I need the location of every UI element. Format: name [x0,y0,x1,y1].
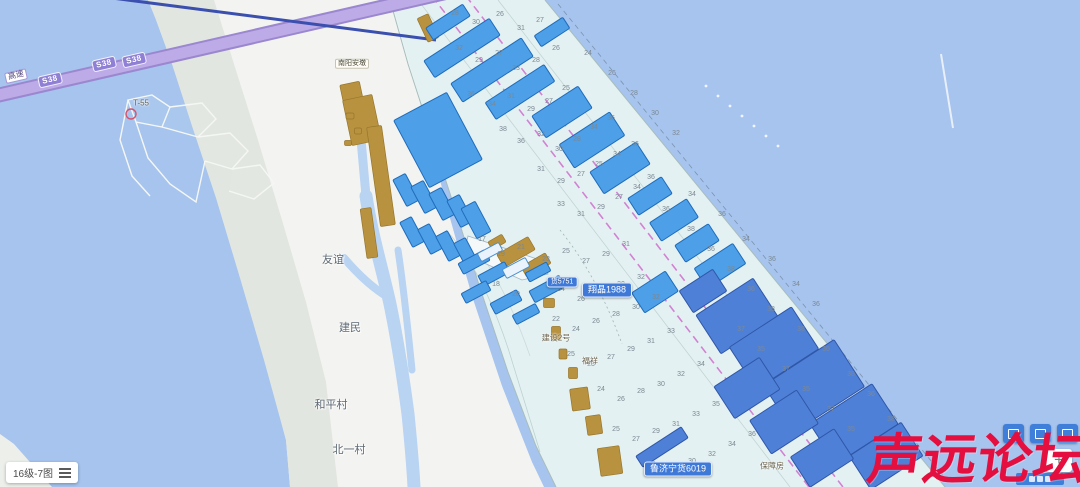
depth-sounding: 34 [688,191,696,198]
depth-sounding: 29 [652,428,660,435]
depth-sounding: 33 [557,201,565,208]
depth-sounding: 30 [632,304,640,311]
spoil-area [597,446,623,477]
map-app: 2830263127322927332826363431292725383632… [0,0,1080,487]
depth-sounding: 20 [512,291,520,298]
depth-sounding: 26 [608,70,616,77]
depth-sounding: 36 [517,138,525,145]
depth-sounding: 35 [712,401,720,408]
menu-icon[interactable] [59,468,71,470]
depth-sounding: 34 [728,441,736,448]
depth-sounding: 28 [630,90,638,97]
depth-sounding: 32 [537,131,545,138]
place-label: 南阳安墩 [335,59,369,69]
depth-sounding: 31 [537,166,545,173]
depth-sounding: 38 [847,371,855,378]
depth-sounding: 21 [517,244,525,251]
depth-sounding: 37 [827,406,835,413]
spoil-area [544,299,555,308]
depth-sounding: 32 [708,451,716,458]
depth-sounding: 34 [590,124,598,131]
depth-sounding: 27 [536,17,544,24]
depth-sounding: 37 [737,326,745,333]
depth-sounding: 33 [692,411,700,418]
depth-sounding: 25 [612,426,620,433]
depth-sounding: 28 [612,311,620,318]
depth-sounding: 28 [532,57,540,64]
depth-sounding: 36 [812,301,820,308]
depth-sounding: 30 [555,146,563,153]
depth-sounding: 30 [657,381,665,388]
depth-sounding: 36 [467,91,475,98]
depth-sounding: 36 [747,286,755,293]
depth-sounding: 29 [557,178,565,185]
map-canvas[interactable]: 2830263127322927332826363431292725383632… [0,0,1080,487]
depth-sounding: 24 [584,50,592,57]
depth-sounding: 27 [495,50,503,57]
depth-sounding: 36 [707,246,715,253]
ship-badge[interactable]: 货5751 [547,277,578,288]
depth-sounding: 37 [782,366,790,373]
depth-sounding: 19 [497,251,505,258]
depth-sounding: 38 [797,326,805,333]
depth-sounding: 24 [572,326,580,333]
depth-sounding: 29 [475,57,483,64]
poi-label: 建设2号 [542,333,570,344]
ship-badge[interactable]: 鲁济宁货6019 [644,462,712,477]
depth-sounding: 23 [542,256,550,263]
spoil-area [346,113,354,119]
depth-sounding: 32 [637,274,645,281]
depth-sounding: 29 [597,204,605,211]
depth-sounding: 24 [597,386,605,393]
depth-sounding: 27 [577,171,585,178]
spoil-area [569,368,578,379]
depth-sounding: 32 [677,371,685,378]
depth-sounding: 29 [627,346,635,353]
depth-sounding: 38 [887,416,895,423]
depth-sounding: 31 [577,211,585,218]
depth-sounding: 25 [567,351,575,358]
depth-sounding: 26 [617,396,625,403]
poi-label: T-55 [133,99,149,108]
poi-label: 福祥 [582,356,598,367]
depth-sounding: 36 [662,206,670,213]
ship-badge[interactable]: 翔晶1988 [582,283,632,298]
depth-sounding: 31 [647,338,655,345]
depth-sounding: 18 [492,281,500,288]
depth-sounding: 36 [867,391,875,398]
depth-sounding: 27 [545,98,553,105]
depth-sounding: 32 [672,130,680,137]
depth-sounding: 34 [613,151,621,158]
depth-sounding: 35 [802,386,810,393]
depth-sounding: 29 [602,251,610,258]
spoil-area [585,415,602,436]
depth-sounding: 38 [727,266,735,273]
depth-sounding: 30 [651,110,659,117]
depth-sounding: 34 [792,281,800,288]
depth-sounding: 27 [632,436,640,443]
depth-sounding: 26 [496,11,504,18]
depth-sounding: 25 [562,248,570,255]
depth-sounding: 31 [622,241,630,248]
depth-sounding: 25 [562,85,570,92]
depth-sounding: 38 [687,226,695,233]
depth-sounding: 29 [527,106,535,113]
scale-control[interactable]: 16级-7图 [6,462,78,483]
depth-sounding: 36 [647,174,655,181]
village-label: 和平村 [315,396,348,412]
depth-sounding: 17 [478,236,486,243]
depth-sounding: 22 [552,316,560,323]
spoil-area [355,128,362,134]
depth-sounding: 38 [499,126,507,133]
spoil-area [345,141,352,146]
depth-sounding: 33 [512,65,520,72]
depth-sounding: 28 [451,10,459,17]
spoil-area [570,387,591,411]
depth-sounding: 34 [488,101,496,108]
depth-sounding: 31 [507,93,515,100]
village-label: 友谊 [322,251,344,267]
depth-sounding: 34 [697,361,705,368]
depth-sounding: 32 [455,45,463,52]
depth-sounding: 36 [748,431,756,438]
depth-sounding: 32 [652,294,660,301]
depth-sounding: 26 [552,45,560,52]
poi-label: 保障房 [760,461,784,472]
depth-sounding: 26 [592,318,600,325]
depth-sounding: 28 [637,388,645,395]
depth-sounding: 31 [517,25,525,32]
village-label: 建民 [339,319,361,335]
depth-sounding: 36 [631,141,639,148]
depth-sounding: 30 [472,19,480,26]
depth-sounding: 35 [757,346,765,353]
depth-sounding: 25 [595,161,603,168]
depth-sounding: 28 [573,136,581,143]
depth-sounding: 34 [742,236,750,243]
spoil-area [559,349,567,359]
forum-watermark: 声远论坛 [864,433,1080,487]
zoom-level-label: 16级-7图 [13,465,53,480]
depth-sounding: 27 [607,354,615,361]
village-label: 北一村 [333,441,366,457]
depth-sounding: 36 [718,211,726,218]
depth-sounding: 36 [822,346,830,353]
depth-sounding: 38 [767,306,775,313]
depth-sounding: 27 [582,258,590,265]
depth-sounding: 31 [672,421,680,428]
depth-sounding: 36 [768,256,776,263]
depth-sounding: 36 [607,115,615,122]
depth-sounding: 35 [847,426,855,433]
depth-sounding: 27 [615,194,623,201]
depth-sounding: 33 [667,328,675,335]
depth-sounding: 34 [633,184,641,191]
